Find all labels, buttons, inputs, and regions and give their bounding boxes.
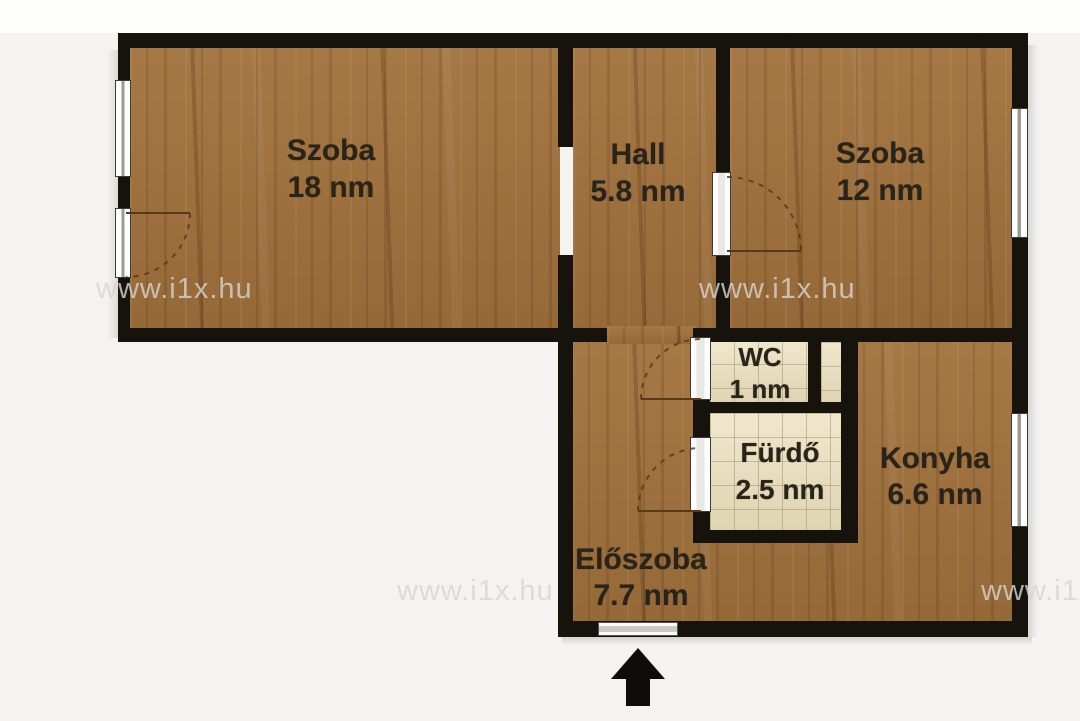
wall-wc-right xyxy=(808,328,821,404)
door-wc xyxy=(690,337,711,400)
door-hall-szoba12 xyxy=(712,172,731,256)
shaft-floor xyxy=(821,342,841,402)
wall-szoba18-bottom xyxy=(118,328,607,342)
wall-hall-left-upper xyxy=(558,33,573,147)
window-szoba12-right xyxy=(1011,108,1028,238)
wall-konyha-left xyxy=(841,328,858,543)
wall-hall-right-upper xyxy=(716,33,730,172)
window-szoba18-left xyxy=(115,80,131,177)
wall-wc-bottom xyxy=(693,402,858,413)
room-floor-furdo xyxy=(710,413,841,530)
wall-hall-right-lower xyxy=(716,256,730,342)
door-furdo xyxy=(690,437,711,512)
wall-furdo-bottom xyxy=(693,530,858,543)
watermark-bottom-left: www.i1x.hu xyxy=(397,575,554,608)
wall-hall-left-lower-eloszoba-left xyxy=(558,255,573,637)
entrance-arrow-icon xyxy=(611,648,665,706)
room-floor-szoba-18 xyxy=(130,48,560,328)
wall-top-outer xyxy=(118,33,1028,48)
room-floor-szoba-12 xyxy=(730,48,1012,328)
floor-plan-canvas: Szoba 18 nm Hall 5.8 nm Szoba 12 nm WC 1… xyxy=(0,0,1080,721)
shadow-bottom xyxy=(562,637,1032,645)
room-floor-hall xyxy=(573,48,716,342)
balcony-door-szoba18 xyxy=(115,208,131,278)
top-background-band xyxy=(0,0,1080,33)
wall-band-right-of-opening xyxy=(697,328,1028,342)
room-floor-wc xyxy=(710,340,808,402)
window-konyha-right xyxy=(1011,413,1028,527)
hall-eloszoba-opening-floor xyxy=(607,326,697,344)
entrance-door xyxy=(598,622,678,636)
